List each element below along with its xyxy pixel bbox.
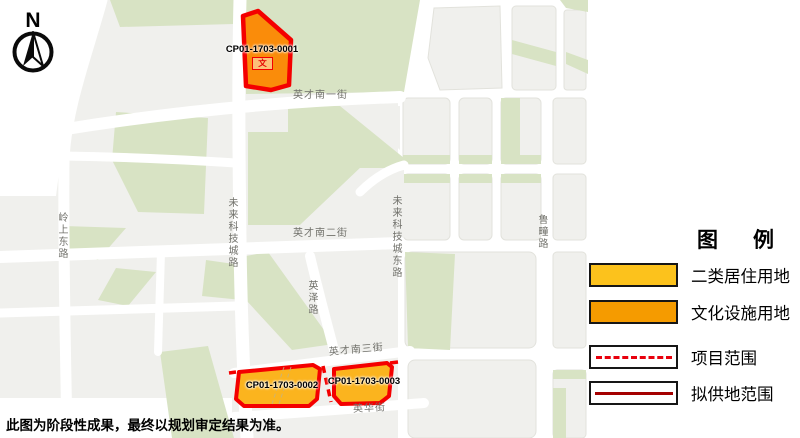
street-label-yingcai-south-1: 英才南一街	[293, 91, 348, 101]
culture-swatch	[589, 300, 678, 324]
compass-north-label: N	[25, 9, 40, 32]
legend-title: 图 例	[697, 224, 799, 254]
legend-label: 文化设施用地	[691, 300, 790, 324]
street-label-future-tech-city-east-road: 未来科技城东路	[390, 195, 400, 279]
legend: 图 例 二类居住用地 文化设施用地 项目范围 拟供地范围	[589, 224, 799, 424]
parcel-use-tag-culture: 文	[252, 57, 273, 70]
parcel-label-0003: CP01-1703-0003	[327, 377, 401, 387]
street-label-yingcai-south-2: 英才南二街	[293, 229, 348, 239]
legend-row-residential: 二类居住用地	[589, 262, 790, 288]
street-label-lutan-road: 鲁疃路	[536, 214, 546, 250]
legend-row-project-scope: 项目范围	[589, 344, 757, 370]
map-canvas: N	[0, 0, 590, 438]
legend-label: 项目范围	[691, 345, 757, 369]
street-label-future-tech-city-road: 未来科技城路	[226, 197, 236, 269]
project-scope-swatch	[589, 345, 678, 369]
solid-line-sample	[595, 392, 673, 395]
planning-map-page: N 英才南一街 英才南二街 英才南三街 英华街 未来科技城路 未来科技城东路 鲁…	[0, 0, 800, 438]
supply-scope-swatch	[589, 381, 678, 405]
residential-swatch	[589, 263, 678, 287]
dashed-line-sample	[596, 356, 672, 359]
legend-row-culture: 文化设施用地	[589, 299, 790, 325]
legend-row-supply-scope: 拟供地范围	[589, 380, 774, 406]
legend-label: 拟供地范围	[691, 381, 774, 405]
disclaimer-text: 此图为阶段性成果，最终以规划审定结果为准。	[6, 414, 290, 434]
legend-label: 二类居住用地	[691, 263, 790, 287]
street-label-lingshang-east-road: 岭上东路	[56, 212, 66, 260]
parcel-label-0002: CP01-1703-0002	[244, 381, 320, 391]
street-label-yinghua: 英华街	[353, 403, 386, 415]
street-label-yingze-road: 英泽路	[306, 280, 316, 316]
parcel-label-0001: CP01-1703-0001	[224, 45, 300, 55]
